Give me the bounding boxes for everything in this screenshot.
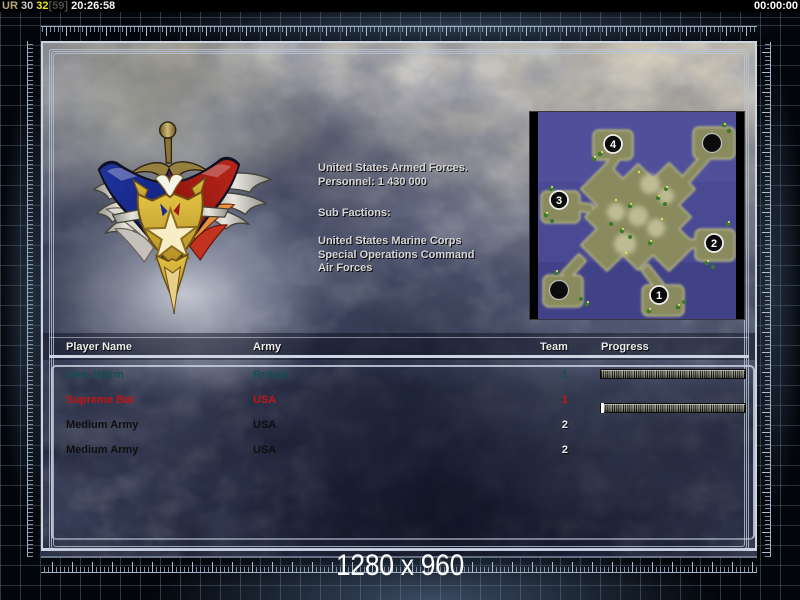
svg-text:3: 3 (556, 195, 562, 207)
svg-text:2: 2 (711, 238, 717, 250)
svg-text:4: 4 (610, 139, 617, 151)
svg-text:1: 1 (656, 290, 662, 302)
